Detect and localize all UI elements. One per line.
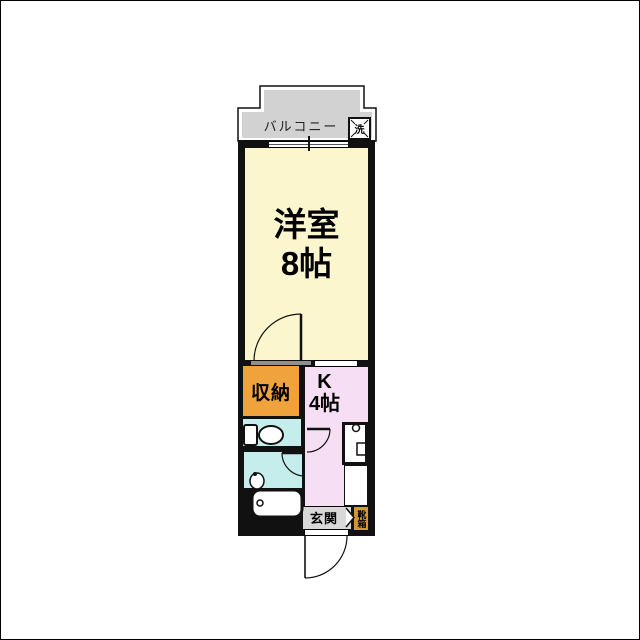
main-room-name: 洋室 (274, 206, 340, 245)
kitchen-counter-icon (342, 422, 368, 465)
refrigerator-space (344, 465, 368, 506)
balcony-window (269, 141, 348, 148)
main-room-size: 8帖 (274, 245, 340, 284)
kitchen-label: K 4帖 (305, 369, 344, 417)
main-room-label: 洋室 8帖 (245, 197, 368, 293)
washer-label: 洗 (348, 117, 371, 140)
entrance-threshold (304, 529, 349, 536)
entrance-label: 玄関 (303, 506, 345, 529)
kitchen-size: 4帖 (309, 393, 340, 415)
closet-label: 収納 (243, 366, 299, 416)
door-threshold (251, 361, 311, 365)
toilet-room-area (243, 419, 301, 446)
balcony-label: バルコニー (251, 115, 351, 135)
washroom-area (244, 452, 302, 488)
shoebox-label: 靴箱 (352, 505, 370, 532)
floor-plan-canvas: バルコニー 洗 洋室 8帖 収納 K 4帖 玄関 靴箱 (0, 0, 640, 640)
entrance-door-arc (305, 536, 347, 578)
sliding-door-kitchen (314, 360, 358, 367)
kitchen-name: K (309, 371, 340, 393)
